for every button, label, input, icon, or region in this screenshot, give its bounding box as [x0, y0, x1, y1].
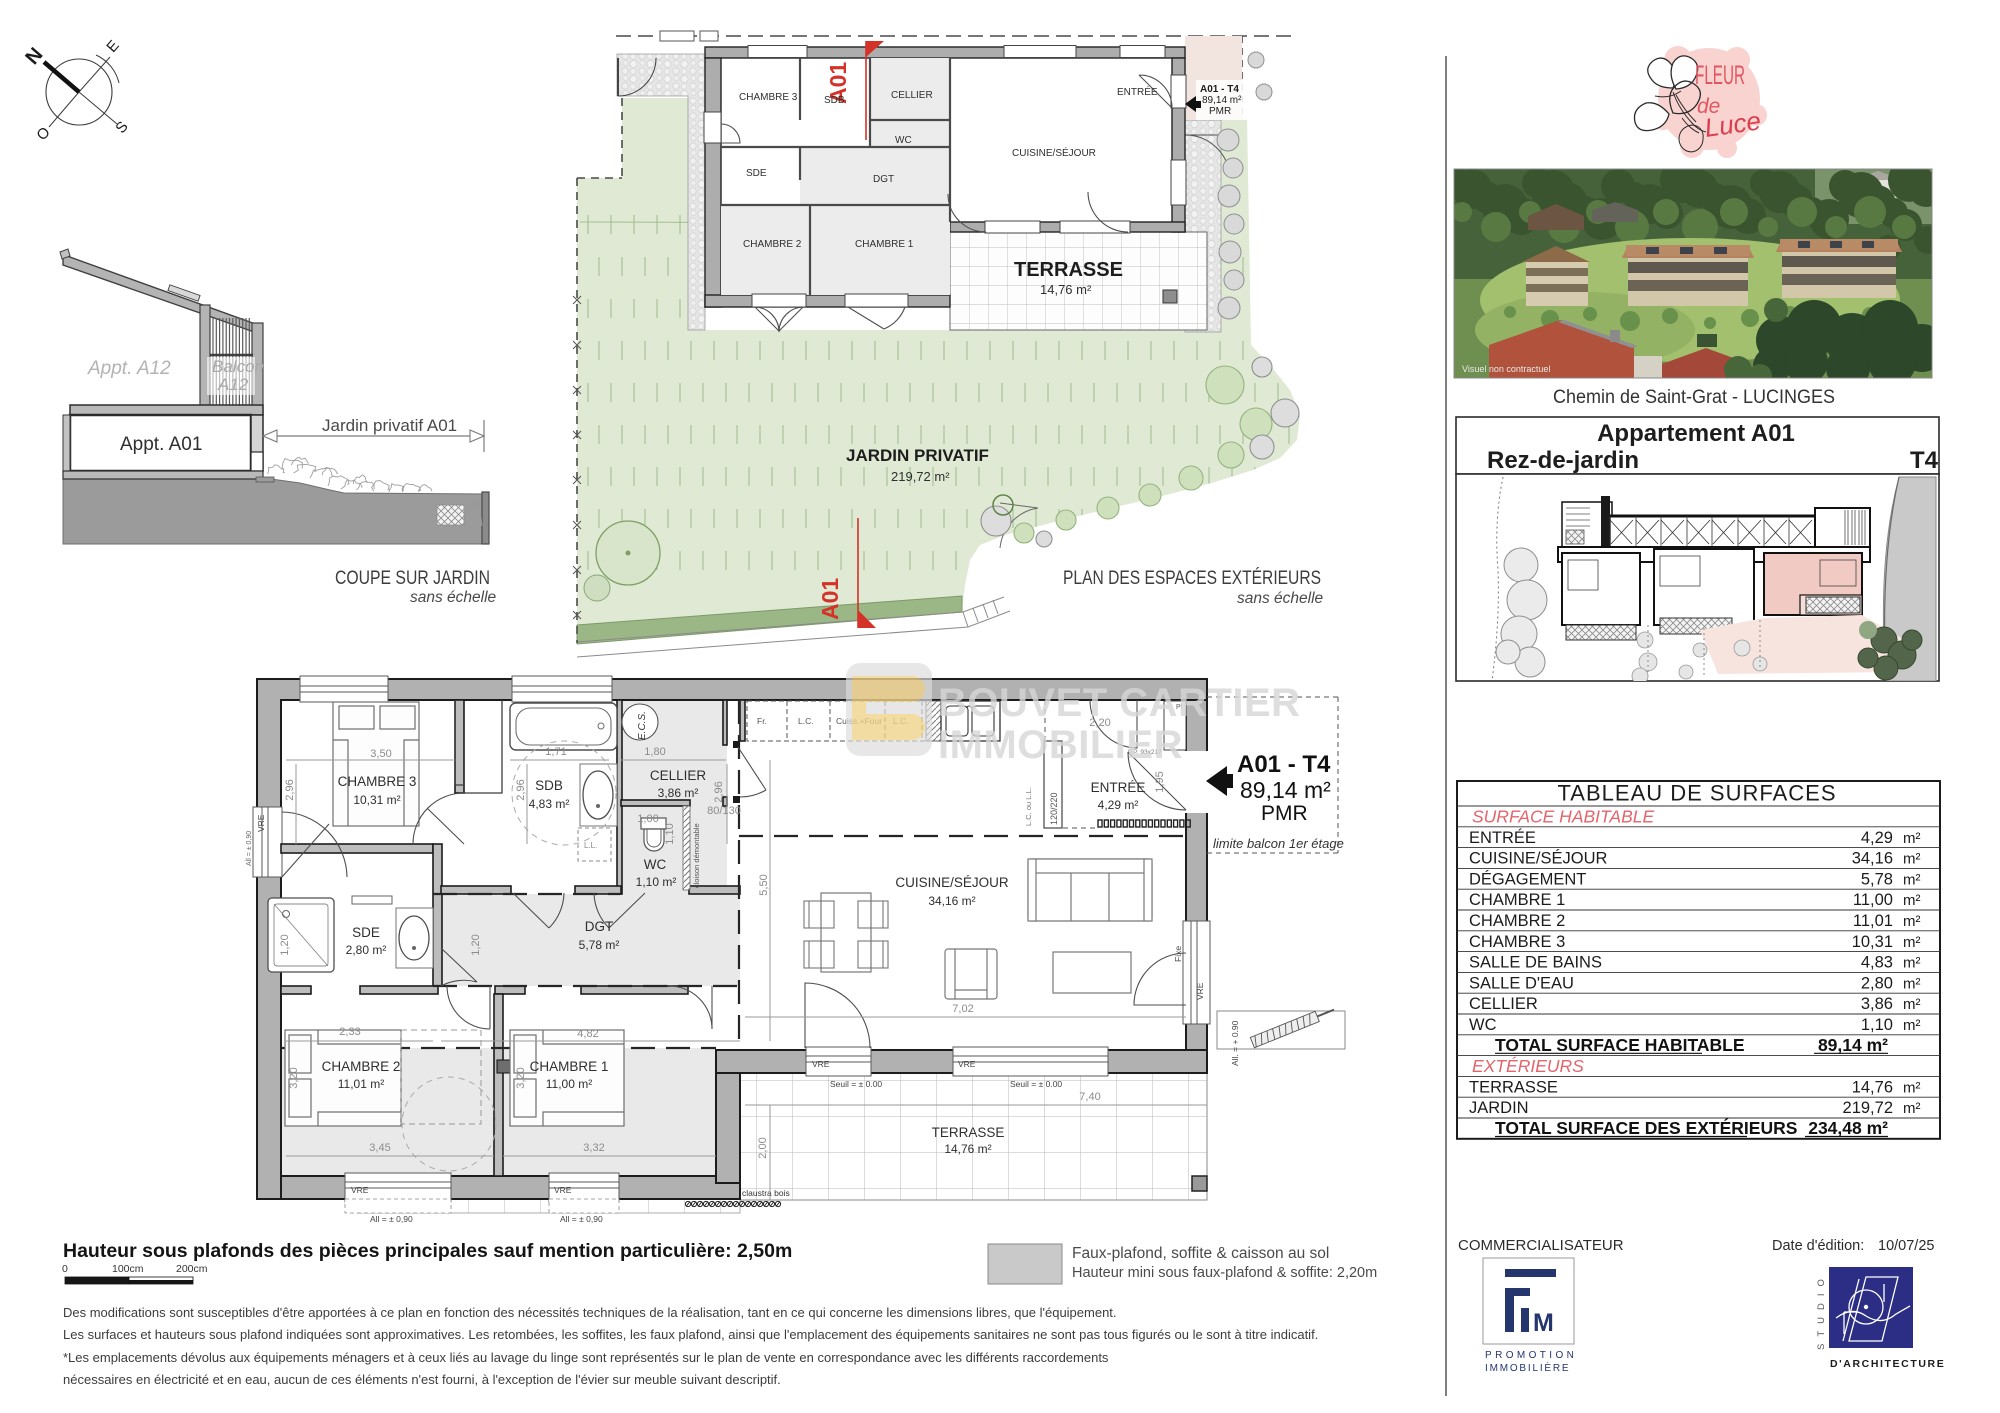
svg-text:3,20: 3,20 — [288, 1067, 300, 1088]
svg-text:3,45: 3,45 — [369, 1142, 390, 1154]
svg-text:4,83 m²: 4,83 m² — [529, 797, 570, 811]
svg-text:Appt. A01: Appt. A01 — [120, 434, 202, 455]
svg-text:219,72 m²: 219,72 m² — [891, 469, 950, 484]
svg-text:limite balcon 1er étage: limite balcon 1er étage — [1213, 836, 1344, 851]
svg-text:3,20: 3,20 — [515, 1067, 527, 1088]
svg-text:CHAMBRE 1: CHAMBRE 1 — [530, 1059, 609, 1074]
svg-text:PMR: PMR — [1209, 106, 1231, 117]
svg-text:5,50: 5,50 — [758, 874, 770, 895]
svg-text:VRE: VRE — [256, 814, 266, 832]
svg-text:1,20: 1,20 — [470, 934, 482, 955]
svg-text:WC: WC — [895, 135, 912, 146]
svg-text:JARDIN: JARDIN — [1469, 1099, 1529, 1117]
svg-text:CELLIER: CELLIER — [1469, 995, 1538, 1013]
svg-text:2,80: 2,80 — [1861, 974, 1893, 992]
svg-text:VRE: VRE — [958, 1059, 976, 1069]
svg-text:CUISINE/SÉJOUR: CUISINE/SÉJOUR — [895, 875, 1009, 890]
svg-text:5,78 m²: 5,78 m² — [579, 938, 620, 952]
svg-text:100cm: 100cm — [112, 1263, 144, 1275]
svg-text:m²: m² — [1903, 975, 1921, 992]
svg-text:IMMOBILIER: IMMOBILIER — [938, 723, 1183, 767]
svg-text:A01: A01 — [817, 578, 843, 620]
svg-text:All = ± 0,90: All = ± 0,90 — [246, 831, 253, 866]
svg-text:E.C.S.: E.C.S. — [637, 711, 648, 740]
svg-text:Faux-plafond, soffite & caisso: Faux-plafond, soffite & caisson au sol — [1072, 1245, 1329, 1262]
svg-text:SALLE D'EAU: SALLE D'EAU — [1469, 974, 1574, 992]
svg-text:11,00 m²: 11,00 m² — [546, 1077, 592, 1091]
svg-text:CHAMBRE 2: CHAMBRE 2 — [1469, 912, 1565, 930]
svg-text:DGT: DGT — [873, 174, 894, 185]
svg-text:SDB: SDB — [535, 778, 563, 793]
svg-text:claustra bois: claustra bois — [742, 1188, 790, 1198]
svg-text:CHAMBRE 1: CHAMBRE 1 — [1469, 891, 1565, 909]
svg-text:JARDIN PRIVATIF: JARDIN PRIVATIF — [846, 446, 989, 465]
svg-text:ENTRÉE: ENTRÉE — [1091, 780, 1146, 795]
svg-text:4,82: 4,82 — [577, 1028, 598, 1040]
svg-text:CUISINE/SÉJOUR: CUISINE/SÉJOUR — [1469, 849, 1608, 868]
svg-text:ENTRÉE: ENTRÉE — [1469, 828, 1536, 847]
svg-text:7,40: 7,40 — [1079, 1091, 1100, 1103]
svg-text:TERRASSE: TERRASSE — [932, 1125, 1005, 1140]
svg-text:TOTAL SURFACE DES EXTÉRIEURS: TOTAL SURFACE DES EXTÉRIEURS — [1495, 1117, 1797, 1138]
svg-text:234,48 m²: 234,48 m² — [1808, 1118, 1888, 1138]
svg-text:L.L.: L.L. — [584, 841, 597, 850]
svg-text:14,76 m²: 14,76 m² — [1040, 282, 1092, 297]
svg-text:Des modifications sont suscept: Des modifications sont susceptibles d'êt… — [63, 1305, 1117, 1320]
svg-text:Seuil = ± 0.00: Seuil = ± 0.00 — [1010, 1079, 1062, 1089]
svg-text:CELLIER: CELLIER — [891, 90, 933, 101]
svg-text:CUISINE/SÉJOUR: CUISINE/SÉJOUR — [1012, 146, 1096, 159]
svg-text:34,16 m²: 34,16 m² — [928, 894, 975, 908]
svg-text:1,10: 1,10 — [664, 823, 676, 844]
svg-text:FLEUR: FLEUR — [1695, 60, 1745, 90]
svg-text:m²: m² — [1903, 851, 1921, 868]
svg-text:m²: m² — [1903, 1079, 1921, 1096]
svg-text:All. = + 0.90: All. = + 0.90 — [1230, 1020, 1240, 1066]
svg-text:2,96: 2,96 — [284, 779, 296, 800]
svg-text:Fr.: Fr. — [757, 716, 767, 726]
svg-text:CHAMBRE 3: CHAMBRE 3 — [338, 774, 417, 789]
svg-text:COMMERCIALISATEUR: COMMERCIALISATEUR — [1458, 1237, 1624, 1254]
svg-text:SDE: SDE — [746, 168, 767, 179]
svg-text:5,78: 5,78 — [1861, 870, 1893, 888]
svg-text:4,29: 4,29 — [1861, 829, 1893, 847]
svg-text:cloison démontable: cloison démontable — [692, 823, 701, 888]
svg-text:L.C. ou L.L.: L.C. ou L.L. — [1024, 787, 1033, 826]
svg-text:219,72: 219,72 — [1843, 1099, 1893, 1117]
svg-text:m²: m² — [1903, 871, 1921, 888]
svg-text:STUDIO: STUDIO — [1816, 1272, 1827, 1350]
svg-text:4,83: 4,83 — [1861, 954, 1893, 972]
svg-text:T4: T4 — [1910, 447, 1939, 474]
svg-text:SALLE DE BAINS: SALLE DE BAINS — [1469, 954, 1602, 972]
svg-text:1,10: 1,10 — [1861, 1016, 1893, 1034]
svg-text:89,14 m²: 89,14 m² — [1818, 1035, 1888, 1055]
svg-text:3,86: 3,86 — [1861, 995, 1893, 1013]
svg-text:SDB: SDB — [824, 95, 845, 106]
svg-text:VRE: VRE — [554, 1185, 572, 1195]
svg-text:TOTAL SURFACE HABITABLE: TOTAL SURFACE HABITABLE — [1495, 1035, 1745, 1055]
svg-text:BOUVET CARTIER: BOUVET CARTIER — [938, 681, 1301, 725]
svg-text:Rez-de-jardin: Rez-de-jardin — [1487, 447, 1639, 474]
svg-text:VRE: VRE — [1195, 982, 1205, 1000]
svg-text:0: 0 — [62, 1263, 68, 1275]
svg-text:2,96: 2,96 — [515, 779, 527, 800]
svg-text:11,01 m²: 11,01 m² — [338, 1077, 384, 1091]
svg-text:CHAMBRE 1: CHAMBRE 1 — [855, 239, 914, 250]
svg-text:m²: m² — [1903, 955, 1921, 972]
svg-text:CHAMBRE 3: CHAMBRE 3 — [1469, 933, 1565, 951]
svg-text:m²: m² — [1903, 830, 1921, 847]
svg-text:All = ± 0,90: All = ± 0,90 — [370, 1214, 413, 1224]
svg-text:A12: A12 — [217, 375, 249, 394]
svg-text:3,32: 3,32 — [583, 1142, 604, 1154]
svg-text:A01 - T4: A01 - T4 — [1200, 84, 1239, 95]
svg-text:89,14 m²: 89,14 m² — [1202, 95, 1242, 106]
svg-text:Fixe: Fixe — [1173, 946, 1183, 962]
svg-text:Jardin privatif A01: Jardin privatif A01 — [322, 416, 457, 435]
svg-text:SDE: SDE — [352, 925, 380, 940]
svg-text:EXTÉRIEURS: EXTÉRIEURS — [1472, 1056, 1584, 1076]
svg-text:2,33: 2,33 — [339, 1026, 360, 1038]
svg-text:Visuel non contractuel: Visuel non contractuel — [1462, 364, 1550, 374]
svg-text:PMR: PMR — [1261, 802, 1308, 825]
svg-text:120/220: 120/220 — [1049, 792, 1059, 825]
svg-text:COUPE SUR JARDIN: COUPE SUR JARDIN — [335, 568, 490, 589]
svg-text:All = ± 0,90: All = ± 0,90 — [560, 1214, 603, 1224]
svg-text:VRE: VRE — [812, 1059, 830, 1069]
svg-text:Appartement A01: Appartement A01 — [1597, 420, 1795, 447]
svg-text:CHAMBRE 2: CHAMBRE 2 — [743, 239, 802, 250]
svg-text:VRE: VRE — [351, 1185, 369, 1195]
svg-text:Balcon: Balcon — [212, 357, 264, 376]
svg-text:M: M — [1533, 1309, 1554, 1337]
svg-text:DGT: DGT — [585, 919, 614, 934]
svg-text:3,86 m²: 3,86 m² — [658, 786, 699, 800]
svg-text:ENTRÉE: ENTRÉE — [1117, 85, 1158, 98]
svg-text:1,95: 1,95 — [1154, 771, 1166, 792]
svg-text:1,80: 1,80 — [644, 746, 665, 758]
svg-text:2,96: 2,96 — [713, 781, 725, 802]
svg-text:TABLEAU DE SURFACES: TABLEAU DE SURFACES — [1558, 781, 1837, 806]
svg-text:*Les emplacements dévolus aux: *Les emplacements dévolus aux équipement… — [63, 1350, 1109, 1365]
svg-text:Hauteur sous plafonds des pièc: Hauteur sous plafonds des pièces princip… — [63, 1240, 792, 1262]
svg-text:10/07/25: 10/07/25 — [1878, 1238, 1934, 1254]
svg-text:PROMOTION: PROMOTION — [1485, 1350, 1577, 1361]
svg-text:80/130: 80/130 — [707, 805, 741, 817]
svg-text:10,31: 10,31 — [1852, 933, 1893, 951]
svg-text:1,00: 1,00 — [637, 813, 658, 825]
svg-text:34,16: 34,16 — [1852, 850, 1893, 868]
svg-text:m²: m² — [1903, 1017, 1921, 1034]
svg-text:TERRASSE: TERRASSE — [1014, 259, 1123, 281]
svg-text:2,00: 2,00 — [757, 1137, 769, 1158]
svg-text:WC: WC — [644, 857, 667, 872]
svg-text:m²: m² — [1903, 934, 1921, 951]
svg-text:CHAMBRE 2: CHAMBRE 2 — [322, 1059, 401, 1074]
svg-text:L.C.: L.C. — [798, 716, 814, 726]
svg-text:3,50: 3,50 — [370, 748, 391, 760]
svg-text:2,80 m²: 2,80 m² — [346, 943, 387, 957]
svg-text:m²: m² — [1903, 1100, 1921, 1117]
svg-text:D'ARCHITECTURE: D'ARCHITECTURE — [1830, 1358, 1945, 1370]
svg-text:m²: m² — [1903, 913, 1921, 930]
svg-text:IMMOBILIÈRE: IMMOBILIÈRE — [1485, 1361, 1570, 1374]
svg-text:WC: WC — [1469, 1016, 1497, 1034]
svg-text:Les surfaces et hauteurs sous: Les surfaces et hauteurs sous plafond in… — [63, 1327, 1318, 1342]
svg-text:CHAMBRE 3: CHAMBRE 3 — [739, 92, 798, 103]
svg-text:14,76: 14,76 — [1852, 1078, 1893, 1096]
svg-text:Appt. A12: Appt. A12 — [87, 358, 171, 379]
svg-text:sans échelle: sans échelle — [1237, 590, 1324, 607]
svg-text:m²: m² — [1903, 996, 1921, 1013]
svg-text:TERRASSE: TERRASSE — [1469, 1078, 1558, 1096]
svg-text:PLAN DES ESPACES EXTÉRIEURS: PLAN DES ESPACES EXTÉRIEURS — [1063, 568, 1321, 589]
svg-text:11,00: 11,00 — [1853, 891, 1893, 909]
svg-text:14,76 m²: 14,76 m² — [944, 1142, 991, 1156]
svg-text:Date d'édition:: Date d'édition: — [1772, 1238, 1864, 1254]
svg-text:1,20: 1,20 — [279, 934, 291, 955]
svg-text:89,14 m²: 89,14 m² — [1240, 777, 1331, 803]
svg-text:DÉGAGEMENT: DÉGAGEMENT — [1469, 869, 1586, 888]
svg-text:1,10 m²: 1,10 m² — [636, 875, 677, 889]
svg-text:SURFACE HABITABLE: SURFACE HABITABLE — [1472, 807, 1654, 827]
svg-text:7,02: 7,02 — [952, 1003, 973, 1015]
svg-text:Hauteur mini sous faux-plafond: Hauteur mini sous faux-plafond & soffite… — [1072, 1265, 1377, 1281]
svg-text:CELLIER: CELLIER — [650, 768, 707, 783]
svg-text:m²: m² — [1903, 892, 1921, 909]
svg-text:10,31 m²: 10,31 m² — [353, 793, 400, 807]
svg-text:sans échelle: sans échelle — [410, 589, 497, 606]
svg-text:A01 - T4: A01 - T4 — [1237, 751, 1331, 778]
svg-text:Chemin de Saint-Grat - LUCINGE: Chemin de Saint-Grat - LUCINGES — [1553, 387, 1835, 408]
svg-text:4,29 m²: 4,29 m² — [1098, 798, 1139, 812]
svg-text:11,01: 11,01 — [1853, 912, 1893, 930]
svg-text:1,71: 1,71 — [545, 746, 566, 758]
svg-text:nécessaires en électricité et: nécessaires en électricité et en eau, au… — [63, 1372, 781, 1387]
svg-text:200cm: 200cm — [176, 1263, 208, 1275]
svg-text:Seuil = ± 0.00: Seuil = ± 0.00 — [830, 1079, 882, 1089]
